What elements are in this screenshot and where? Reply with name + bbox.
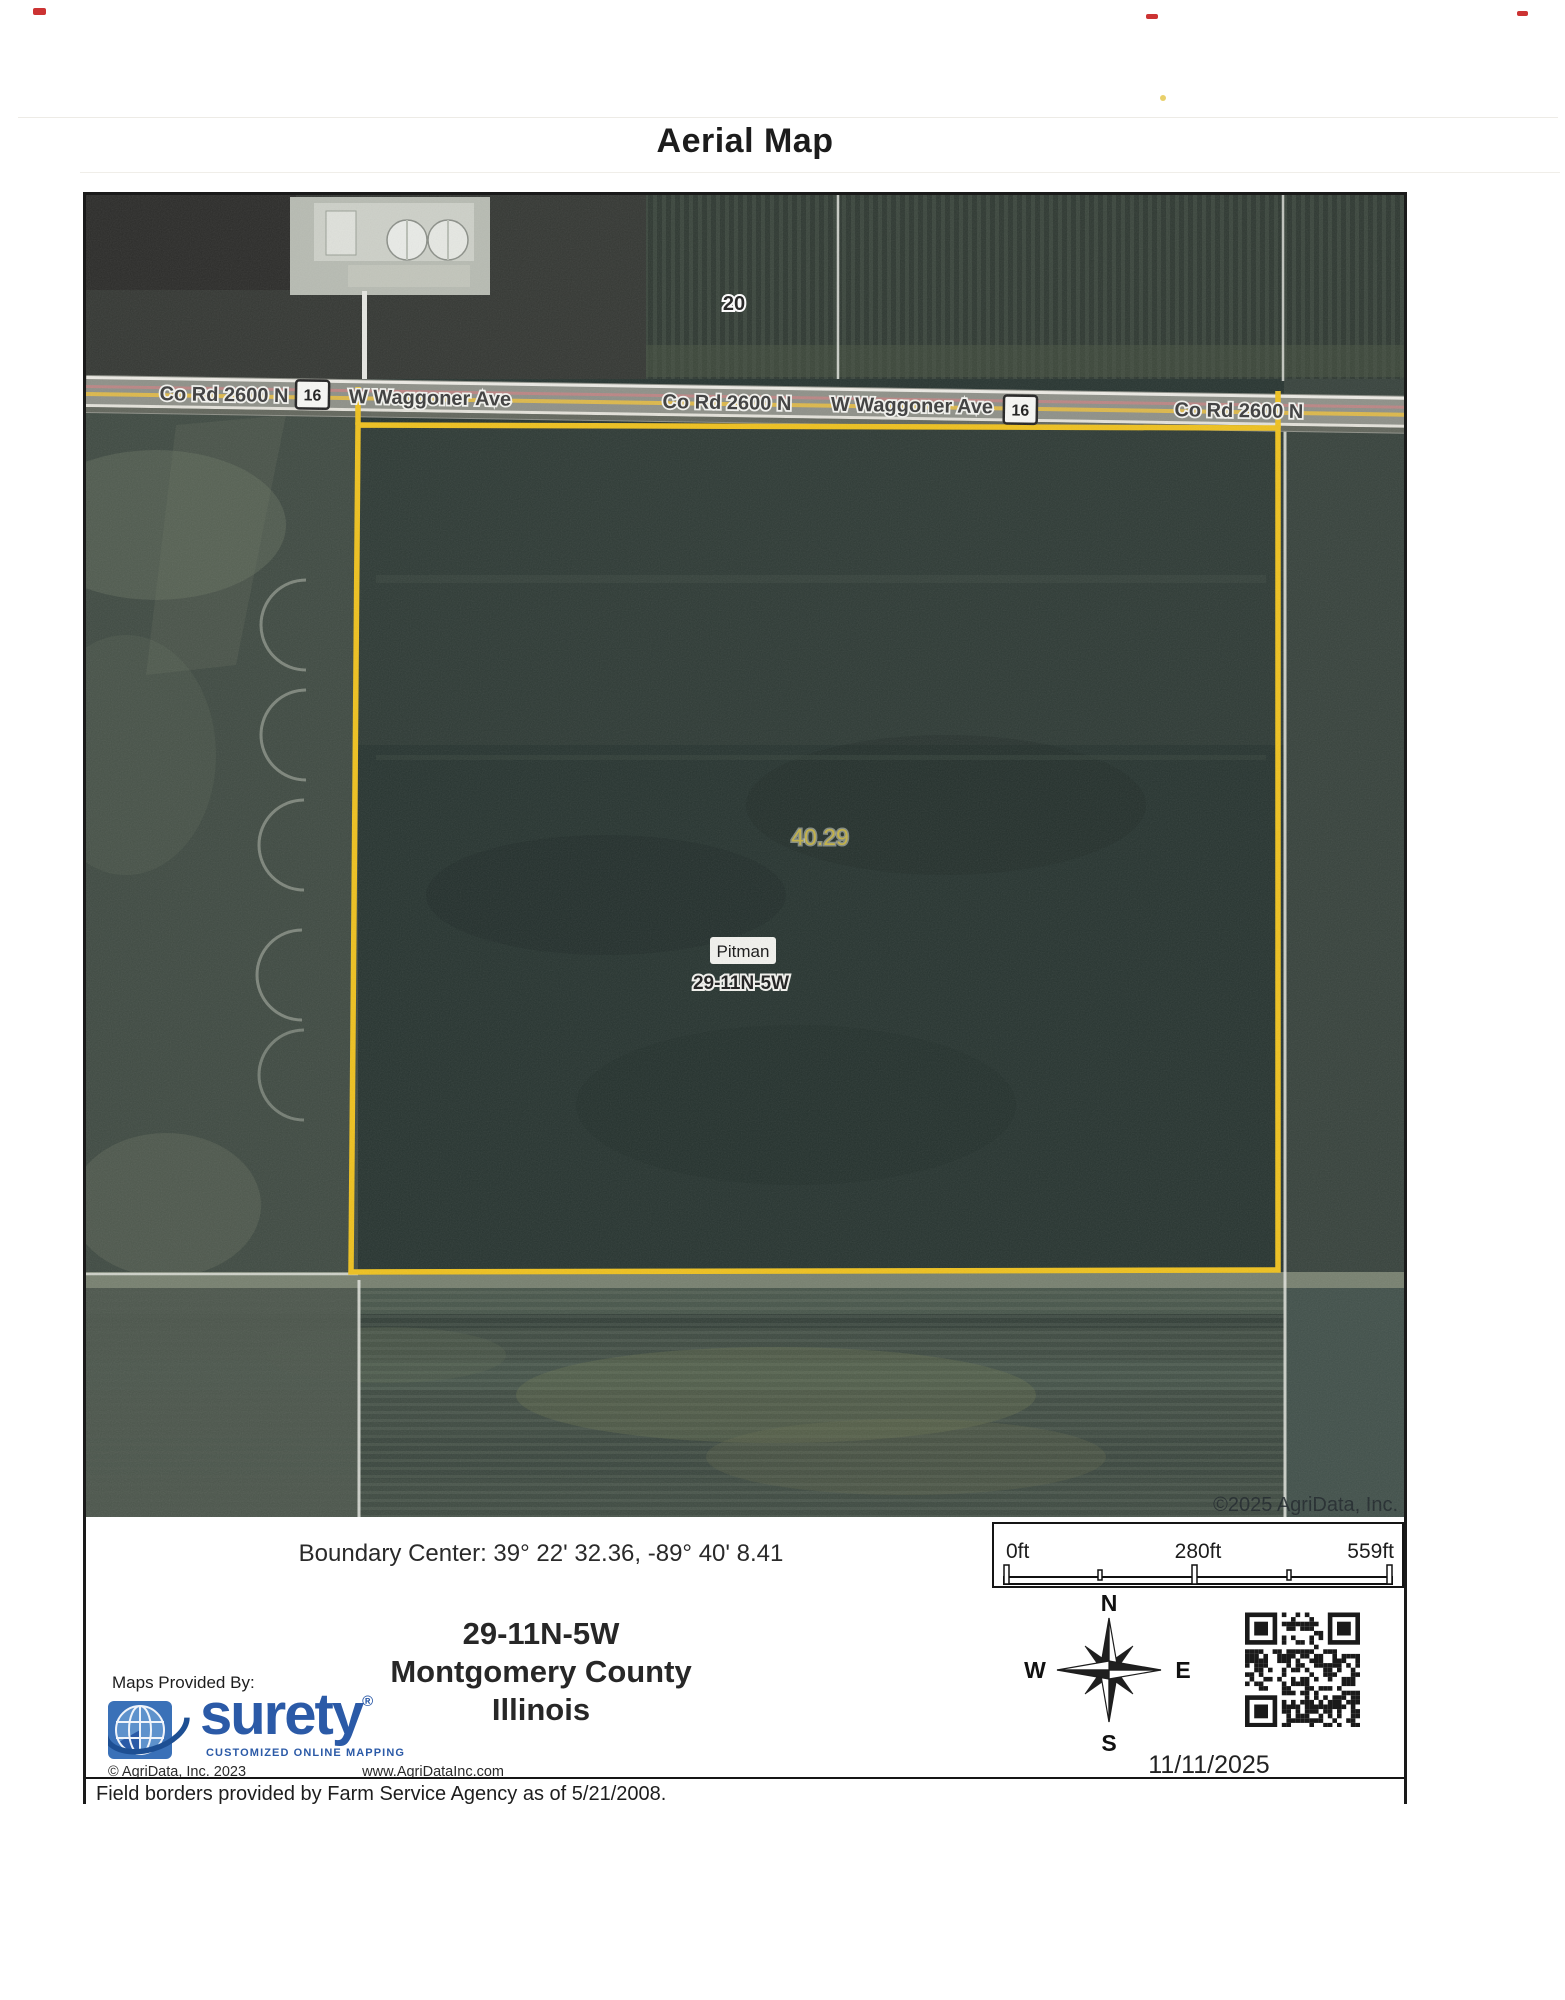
scan-artifact-red [1146, 14, 1158, 19]
surety-tagline: CUSTOMIZED ONLINE MAPPING [206, 1747, 405, 1759]
map-frame: Co Rd 2600 N W Waggoner Ave Co Rd 2600 N… [83, 192, 1407, 1804]
scan-artifact-red [33, 8, 46, 15]
scan-line [18, 117, 1558, 118]
page-title: Aerial Map [83, 122, 1407, 161]
compass-rose: N S E W [1014, 1575, 1204, 1765]
scan-artifact-red [1517, 11, 1528, 16]
surety-wordmark: surety® [200, 1681, 373, 1748]
surety-logo: surety® CUSTOMIZED ONLINE MAPPING [108, 1695, 528, 1759]
field-borders-note: Field borders provided by Farm Service A… [86, 1777, 1404, 1806]
compass-e-label: E [1175, 1657, 1190, 1683]
registered-mark: ® [362, 1693, 373, 1710]
boundary-center-text: Boundary Center: 39° 22' 32.36, -89° 40'… [86, 1540, 996, 1568]
trs-title: 29-11N-5W [86, 1615, 996, 1653]
surety-wordmark-text: surety [200, 1682, 362, 1747]
surety-globe-icon [108, 1695, 192, 1761]
scan-line [80, 172, 1560, 173]
scale-label-mid: 280ft [994, 1540, 1402, 1564]
qr-code [1242, 1611, 1366, 1727]
aerial-map: Co Rd 2600 N W Waggoner Ave Co Rd 2600 N… [86, 195, 1404, 1517]
scale-label-end: 559ft [1347, 1540, 1394, 1564]
scan-artifact-dot [1160, 95, 1166, 101]
map-date: 11/11/2025 [1109, 1751, 1309, 1780]
compass-n-label: N [1101, 1590, 1118, 1616]
compass-w-label: W [1024, 1657, 1046, 1683]
surety-branding-block: Maps Provided By: surety® CUSTOMIZED ONL… [108, 1673, 528, 1780]
